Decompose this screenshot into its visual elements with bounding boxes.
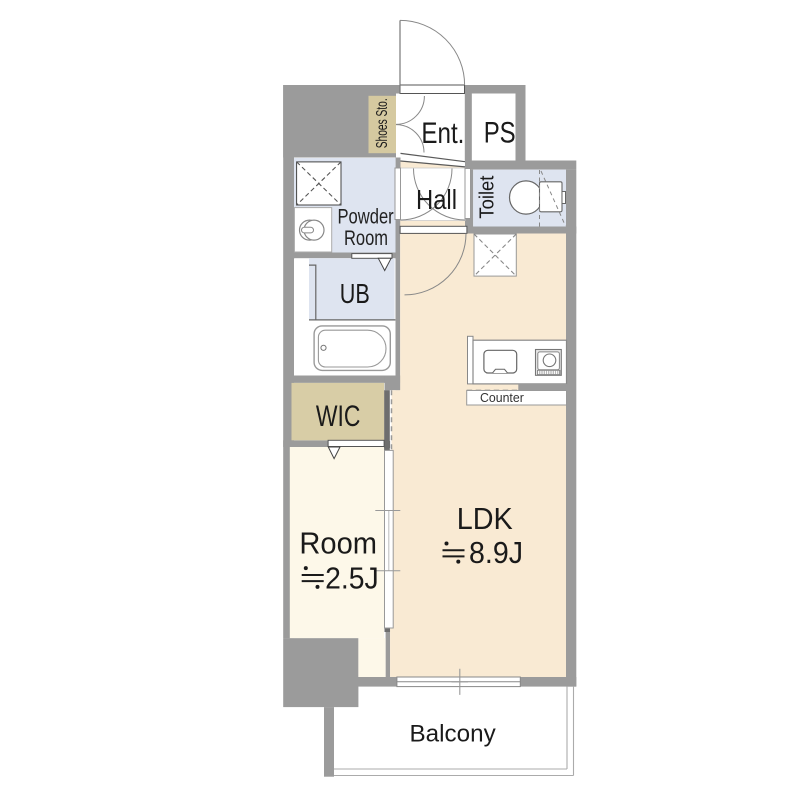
svg-text:LDK: LDK <box>457 501 513 536</box>
svg-text:Shoes Sto.: Shoes Sto. <box>374 98 391 148</box>
svg-text:Balcony: Balcony <box>410 721 497 748</box>
svg-text:PS: PS <box>484 116 516 149</box>
svg-text:2.5J: 2.5J <box>325 561 379 596</box>
svg-text:8.9J: 8.9J <box>469 535 523 570</box>
svg-text:UB: UB <box>340 278 370 309</box>
svg-text:Toilet: Toilet <box>477 175 499 218</box>
svg-text:Room: Room <box>299 525 377 560</box>
svg-text:Powder: Powder <box>338 206 394 229</box>
svg-text:Room: Room <box>344 227 388 250</box>
svg-text:Ent.: Ent. <box>421 117 464 150</box>
svg-text:WIC: WIC <box>316 400 361 433</box>
svg-text:Counter: Counter <box>480 390 524 405</box>
svg-text:Hall: Hall <box>416 184 457 215</box>
